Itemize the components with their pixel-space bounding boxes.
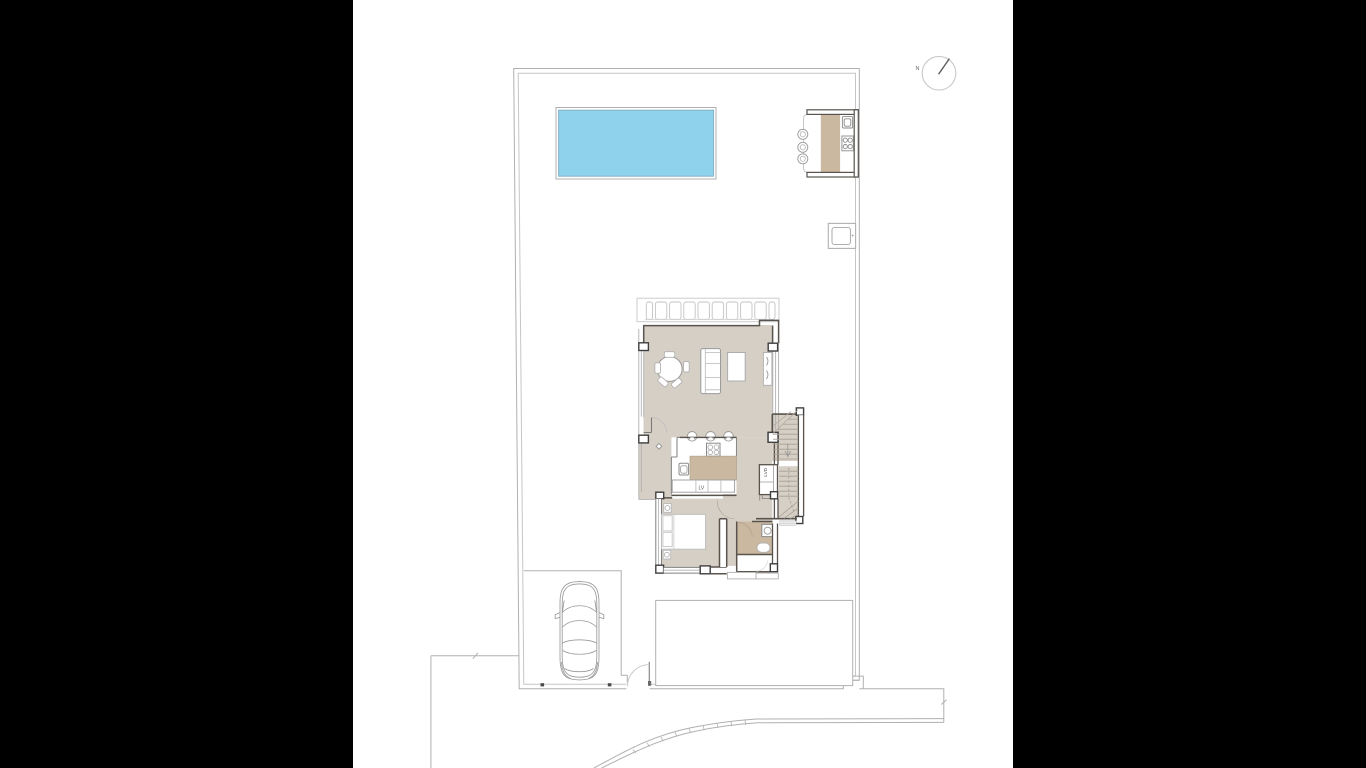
svg-text:LV: LV (699, 485, 705, 491)
svg-text:N: N (916, 66, 920, 72)
svg-text:LVD: LVD (763, 467, 769, 477)
